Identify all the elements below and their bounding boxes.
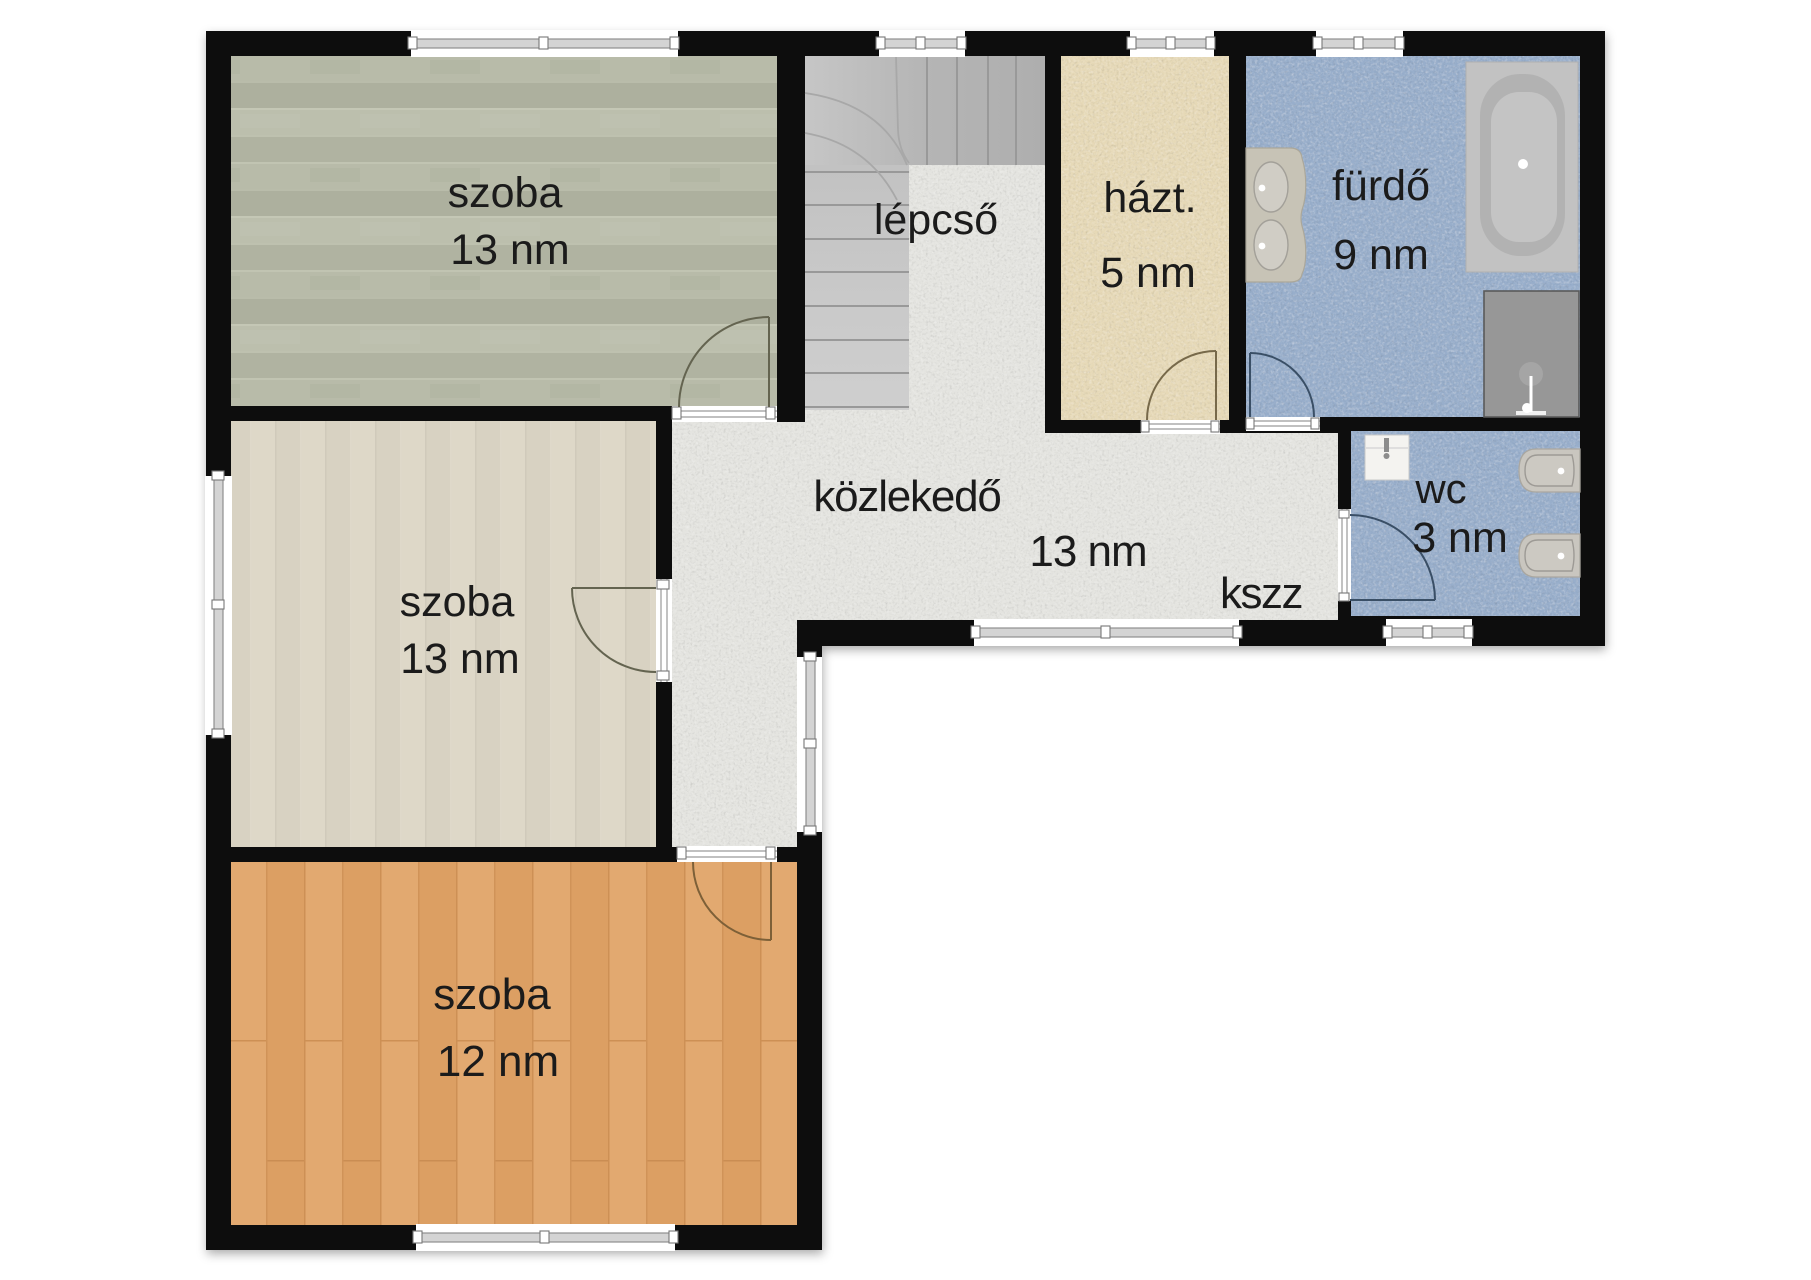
svg-text:12 nm: 12 nm [437, 1037, 559, 1086]
svg-text:5 nm: 5 nm [1100, 249, 1196, 297]
svg-text:szoba: szoba [433, 970, 551, 1019]
svg-text:3 nm: 3 nm [1412, 514, 1508, 562]
svg-text:szoba: szoba [400, 578, 515, 626]
svg-text:9 nm: 9 nm [1333, 231, 1429, 279]
svg-text:lépcső: lépcső [874, 196, 998, 244]
svg-text:13 nm: 13 nm [1029, 527, 1146, 576]
svg-text:közlekedő: közlekedő [813, 472, 1000, 521]
svg-text:13 nm: 13 nm [400, 635, 520, 683]
svg-text:wc: wc [1414, 465, 1466, 512]
svg-text:házt.: házt. [1103, 174, 1196, 222]
svg-text:szoba: szoba [448, 169, 563, 217]
svg-text:fürdő: fürdő [1332, 162, 1430, 210]
svg-text:kszz: kszz [1220, 569, 1302, 618]
svg-text:13 nm: 13 nm [450, 226, 570, 274]
